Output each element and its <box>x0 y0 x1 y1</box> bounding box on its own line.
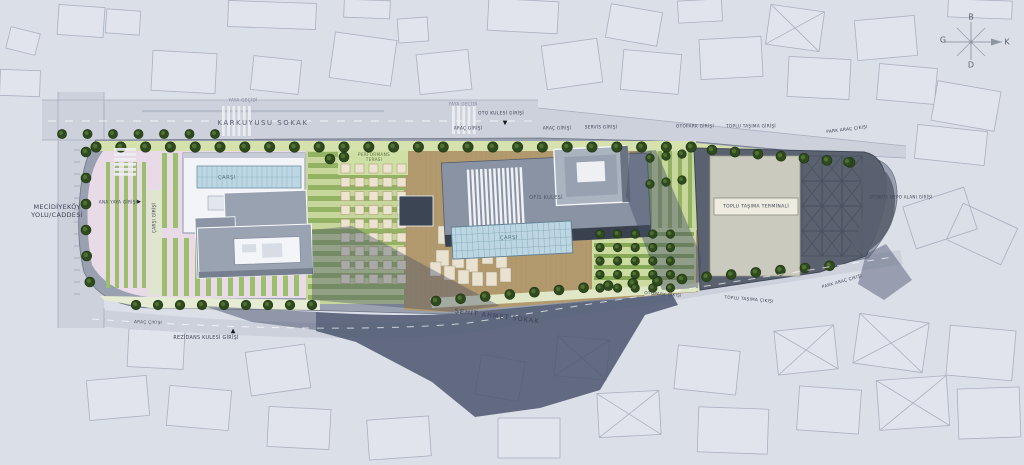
entrance-marker-right-icon: ▶ <box>137 199 141 205</box>
site-plan: KARKUYUSU SOKAK MECİDİYEKÖY YOLU/CADDESİ… <box>0 0 1024 465</box>
entrance-marker-down-icon: ▼ <box>503 120 508 127</box>
compass-north-label: K <box>1004 38 1009 47</box>
compass-east-label: D <box>968 61 974 70</box>
compass-west-label: B <box>968 13 974 22</box>
deck-dark-pavilion <box>399 196 433 226</box>
terminal-label-box <box>714 198 798 215</box>
entrance-marker-up-icon: ▲ <box>231 328 236 335</box>
site-plan-drawing <box>0 0 1024 465</box>
compass-south-label: G <box>940 36 946 45</box>
carsi-glass-roof <box>451 221 573 259</box>
